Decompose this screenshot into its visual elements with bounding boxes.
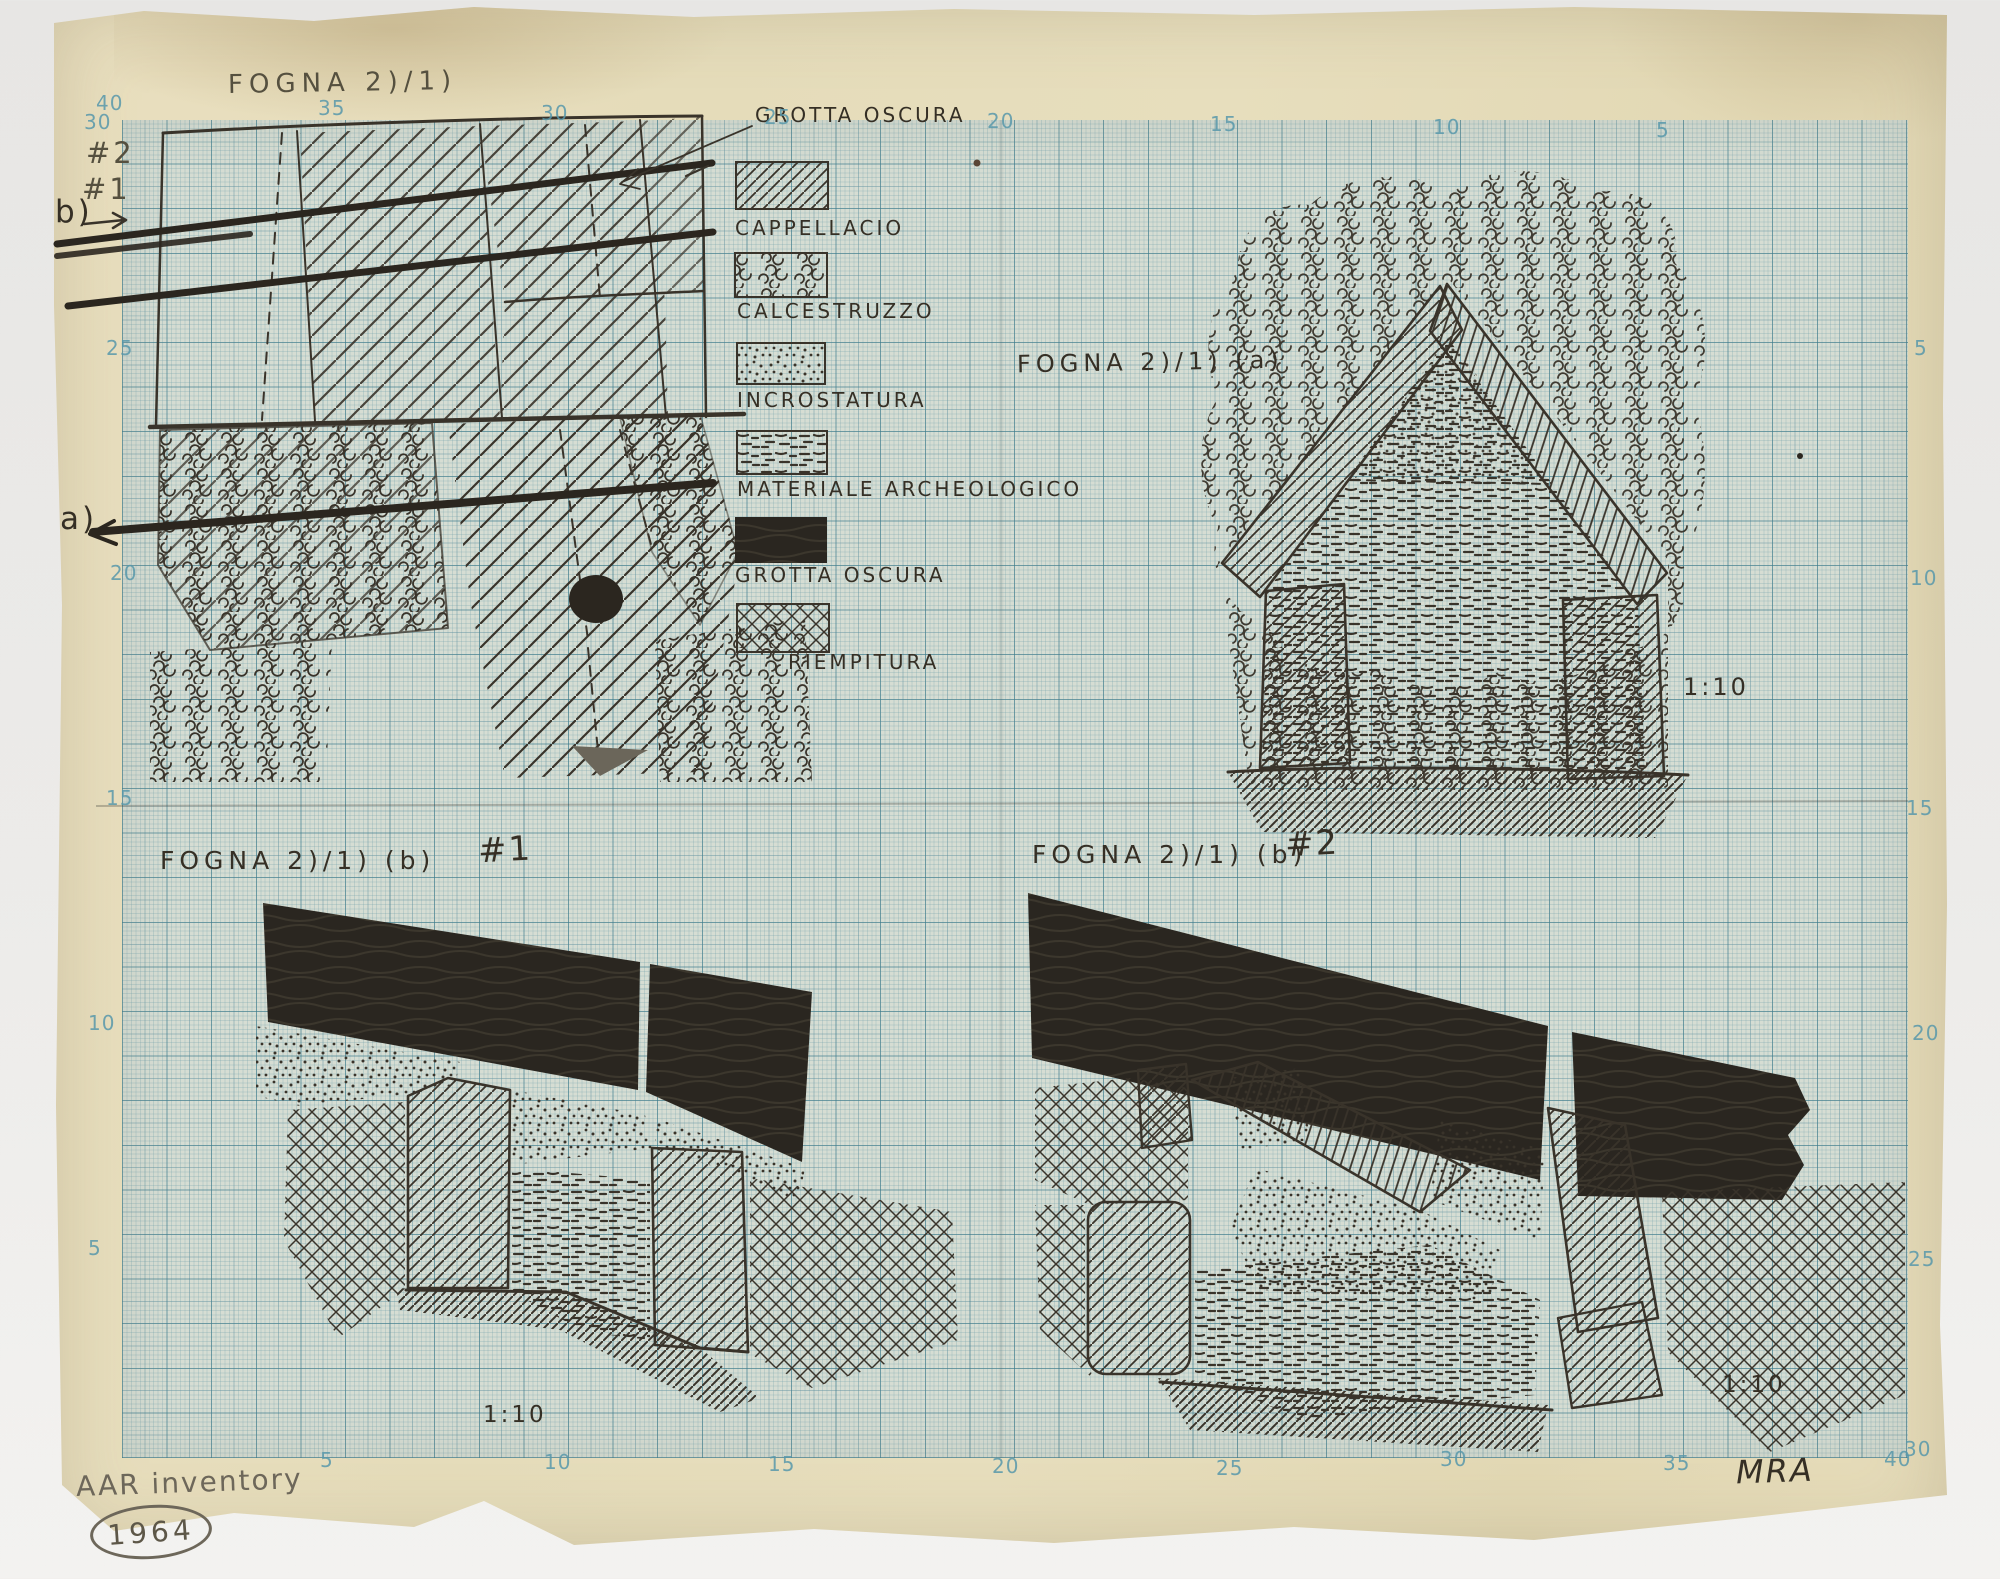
swatch-incrostatura bbox=[737, 343, 825, 384]
grid-number-bottom: 5 bbox=[320, 1448, 334, 1472]
legend-label-cappellacio: CAPPELLACIO bbox=[735, 216, 904, 240]
grid-number-top: 35 bbox=[318, 96, 345, 120]
annotation-section-a: a) bbox=[60, 501, 97, 537]
ink-blob bbox=[569, 575, 623, 623]
legend-label-riempitura: RIEMPITURA bbox=[788, 650, 939, 674]
grid-number-left: 5 bbox=[88, 1236, 102, 1260]
section-b2-number: #2 bbox=[1284, 823, 1340, 866]
wall-block-right bbox=[1563, 595, 1664, 779]
grid-number-bottom: 20 bbox=[992, 1454, 1019, 1478]
inventory-year-text: 1964 bbox=[106, 1512, 195, 1551]
grid-number-left: 15 bbox=[106, 786, 133, 810]
wall-block-left bbox=[408, 1078, 510, 1288]
grid-number-bottom: 25 bbox=[1216, 1456, 1243, 1480]
swatch-grotta-oscura bbox=[735, 517, 827, 563]
section-a-scale: 1:10 bbox=[1683, 673, 1749, 701]
section-b2-scale: 1:10 bbox=[1722, 1372, 1786, 1398]
swatch-calcestruzzo bbox=[735, 253, 827, 297]
grid-number-bottom: 40 bbox=[1884, 1447, 1911, 1471]
section-b1-scale: 1:10 bbox=[483, 1402, 547, 1428]
grid-number-left: 30 bbox=[84, 110, 111, 134]
ink-drawing-layer bbox=[0, 0, 2000, 1579]
grid-number-top: 5 bbox=[1656, 118, 1670, 142]
legend-label-materiale-archeologico: MATERIALE ARCHEOLOGICO bbox=[737, 477, 1082, 501]
grid-number-top: 25 bbox=[764, 105, 791, 129]
section-b1-number: #1 bbox=[477, 829, 533, 872]
section-b2-drawing bbox=[1028, 893, 1905, 1452]
section-a-title: FOGNA 2)/1) (a) bbox=[1017, 346, 1284, 379]
swatch-riempitura bbox=[737, 604, 829, 652]
grid-number-right: 20 bbox=[1912, 1021, 1939, 1045]
plan-title: FOGNA 2)/1) bbox=[228, 66, 458, 100]
grid-number-bottom: 15 bbox=[768, 1452, 795, 1476]
signature-initials: MRA bbox=[1735, 1451, 1814, 1492]
grid-number-right: 10 bbox=[1910, 566, 1937, 590]
wall-block-right bbox=[652, 1148, 748, 1352]
grid-number-right: 25 bbox=[1908, 1247, 1935, 1271]
swatch-cappellacio bbox=[736, 162, 828, 209]
legend-label-incrostatura: INCROSTATURA bbox=[737, 388, 927, 412]
section-b1-drawing bbox=[256, 903, 958, 1412]
grid-number-left: 10 bbox=[88, 1011, 115, 1035]
legend-label-grotta-oscura: GROTTA OSCURA bbox=[735, 563, 946, 587]
annotation-section-b: b) bbox=[55, 194, 93, 230]
grid-number-top: 20 bbox=[987, 109, 1014, 133]
grid-number-top: 15 bbox=[1210, 112, 1237, 136]
section-a-drawing bbox=[1201, 171, 1705, 838]
annotation-line2: #2 bbox=[86, 136, 135, 170]
swatch-materiale-archeologico bbox=[737, 431, 827, 474]
section-b1-title: FOGNA 2)/1) (b) bbox=[160, 846, 435, 875]
grid-number-bottom: 10 bbox=[544, 1450, 571, 1474]
section-b2-title: FOGNA 2)/1) (b) bbox=[1032, 840, 1307, 869]
grid-number-left: 20 bbox=[110, 561, 137, 585]
grid-number-top: 30 bbox=[541, 101, 568, 125]
wall-block-left bbox=[1260, 584, 1350, 768]
grid-number-bottom: 35 bbox=[1663, 1451, 1690, 1475]
grid-number-right: 15 bbox=[1906, 796, 1933, 820]
legend-label-calcestruzzo: CALCESTRUZZO bbox=[737, 299, 935, 323]
grid-number-right: 5 bbox=[1914, 336, 1928, 360]
grid-number-bottom: 30 bbox=[1440, 1447, 1467, 1471]
grid-number-top: 10 bbox=[1433, 115, 1460, 139]
wall-block-left bbox=[1088, 1202, 1190, 1374]
grid-number-left: 25 bbox=[106, 336, 133, 360]
scanned-drawing-sheet: FOGNA 2)/1) #2 #1 b) a) GROTTA OSCURA CA… bbox=[0, 0, 2000, 1579]
